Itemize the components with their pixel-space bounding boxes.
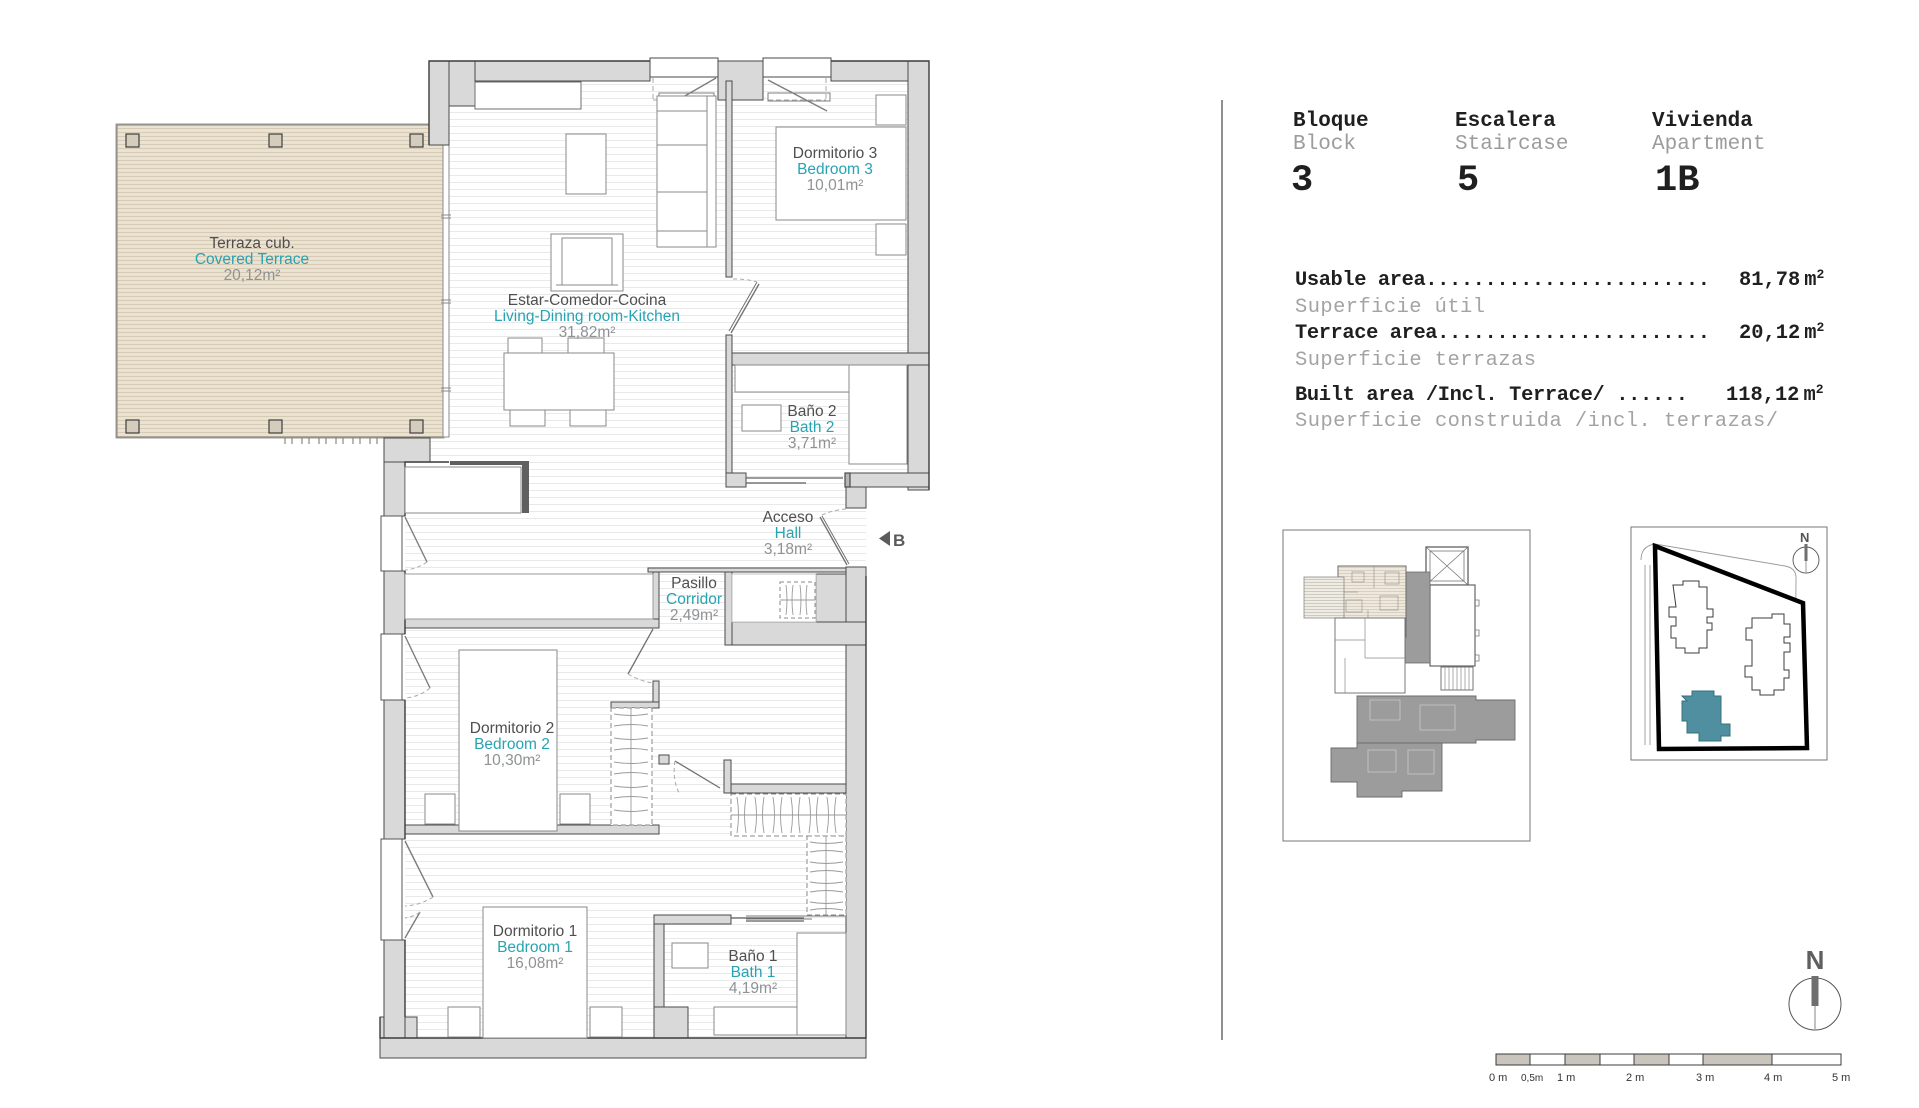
svg-text:Staircase: Staircase [1455,133,1568,156]
svg-text:Dormitorio 3: Dormitorio 3 [793,145,877,162]
svg-text:5 m: 5 m [1832,1072,1850,1084]
svg-text:31,82m²: 31,82m² [559,324,616,341]
svg-text:3: 3 [1291,160,1313,202]
svg-text:Bath 1: Bath 1 [731,964,776,981]
svg-text:Escalera: Escalera [1455,110,1556,133]
svg-text:10,30m²: 10,30m² [484,752,541,769]
svg-text:5: 5 [1457,160,1479,202]
svg-text:3,71m²: 3,71m² [788,435,836,452]
svg-text:Vivienda: Vivienda [1652,110,1753,133]
svg-text:Bedroom 1: Bedroom 1 [497,939,573,956]
svg-text:Superficie construida /incl. t: Superficie construida /incl. terrazas/ [1295,410,1778,433]
svg-text:Block: Block [1293,133,1356,156]
svg-text:Superficie terrazas: Superficie terrazas [1295,349,1536,372]
svg-text:Usable area...................: Usable area........................ [1295,269,1710,292]
svg-text:Estar-Comedor-Cocina: Estar-Comedor-Cocina [508,292,667,309]
svg-text:Terraza cub.: Terraza cub. [209,235,294,252]
svg-text:4 m: 4 m [1764,1072,1782,1084]
svg-text:Built area /Incl. Terrace/ ...: Built area /Incl. Terrace/ ...... [1295,384,1688,407]
svg-text:B: B [893,531,905,550]
svg-text:2,49m²: 2,49m² [670,607,718,624]
svg-text:4,19m²: 4,19m² [729,980,777,997]
svg-text:20,12m²: 20,12m² [224,267,281,284]
svg-text:20,12 m2: 20,12 m2 [1739,320,1825,345]
svg-text:1 m: 1 m [1557,1072,1575,1084]
svg-text:3 m: 3 m [1696,1072,1714,1084]
svg-text:Superficie útil: Superficie útil [1295,296,1485,319]
svg-text:Baño 1: Baño 1 [728,948,777,965]
svg-text:Covered Terrace: Covered Terrace [195,251,309,268]
svg-text:Bedroom 2: Bedroom 2 [474,736,550,753]
svg-text:Dormitorio 2: Dormitorio 2 [470,720,554,737]
svg-text:Dormitorio 1: Dormitorio 1 [493,923,577,940]
svg-text:2 m: 2 m [1626,1072,1644,1084]
svg-text:Terrace area..................: Terrace area....................... [1295,322,1710,345]
svg-text:Pasillo: Pasillo [671,575,717,592]
svg-text:Bedroom 3: Bedroom 3 [797,161,873,178]
svg-text:Baño 2: Baño 2 [787,403,836,420]
svg-text:Living-Dining room-Kitchen: Living-Dining room-Kitchen [494,308,680,325]
svg-text:Apartment: Apartment [1652,133,1765,156]
svg-text:Acceso: Acceso [763,509,814,526]
svg-text:Corridor: Corridor [666,591,722,608]
svg-text:N: N [1800,530,1809,545]
svg-text:10,01m²: 10,01m² [807,177,864,194]
svg-text:0 m: 0 m [1489,1072,1507,1084]
svg-text:Bath 2: Bath 2 [790,419,835,436]
svg-text:3,18m²: 3,18m² [764,541,812,558]
svg-text:16,08m²: 16,08m² [507,955,564,972]
svg-text:81,78 m2: 81,78 m2 [1739,267,1825,292]
svg-text:1B: 1B [1655,160,1699,202]
svg-text:N: N [1806,945,1825,975]
svg-text:118,12 m2: 118,12 m2 [1726,382,1824,407]
svg-text:Bloque: Bloque [1293,110,1369,133]
svg-text:Hall: Hall [775,525,802,542]
svg-text:0,5m: 0,5m [1521,1073,1543,1084]
